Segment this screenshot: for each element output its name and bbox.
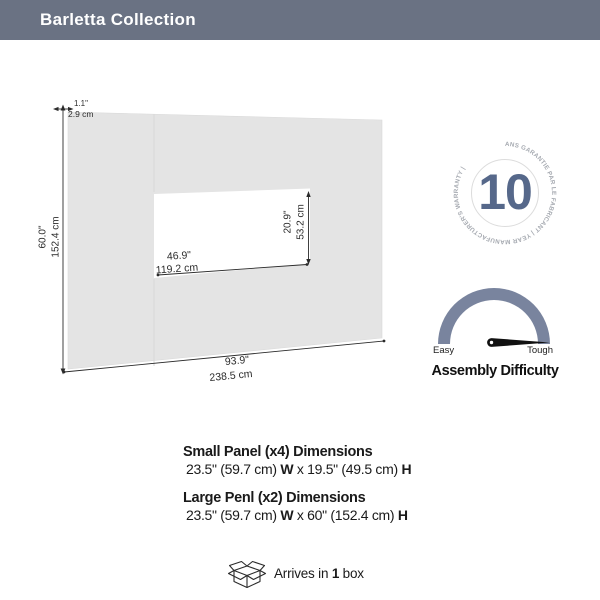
warranty-years: 10	[478, 164, 532, 220]
large-panel-w: W	[280, 507, 293, 523]
large-panel-dims-pre: 23.5" (59.7 cm)	[186, 507, 280, 523]
page: Barletta Collection 60.0" 152.4 cm 1.1" …	[0, 0, 600, 600]
large-panel-dims-mid: x 60" (152.4 cm)	[293, 507, 398, 523]
open-box-icon	[227, 553, 267, 593]
gauge-needle-pivot	[490, 341, 493, 344]
dimension-height: 60.0" 152.4 cm	[38, 105, 66, 375]
gauge-easy-label: Easy	[433, 345, 454, 356]
shipping-text-post: box	[339, 566, 364, 581]
cutout-height-cm-label: 53.2 cm	[296, 204, 307, 240]
small-panel-dims-pre: 23.5" (59.7 cm)	[186, 461, 280, 477]
width-cm-label: 238.5 cm	[209, 368, 253, 384]
large-panel-dimensions: 23.5" (59.7 cm) W x 60" (152.4 cm) H	[183, 507, 411, 523]
small-panel-w: W	[280, 461, 293, 477]
cutout-width-inches-label: 46.9"	[167, 249, 192, 263]
small-panel-dims-mid: x 19.5" (49.5 cm)	[293, 461, 401, 477]
panel-drawing	[68, 112, 382, 369]
height-inches-label: 60.0"	[38, 225, 49, 248]
shipping-info: Arrives in 1 box	[227, 553, 364, 593]
large-panel-h: H	[398, 507, 408, 523]
shipping-text: Arrives in 1 box	[274, 566, 364, 581]
width-inches-label: 93.9"	[224, 354, 249, 368]
small-panel-dimensions: 23.5" (59.7 cm) W x 19.5" (49.5 cm) H	[183, 461, 411, 477]
cutout-height-inches-label: 20.9"	[283, 210, 294, 233]
thickness-inches-label: 1.1"	[74, 99, 88, 108]
shipping-text-pre: Arrives in	[274, 566, 332, 581]
warranty-badge: ANS GARANTIE PAR LE FABRICANT | YEAR MAN…	[453, 141, 557, 245]
spec-large-panel: Large Penl (x2) Dimensions 23.5" (59.7 c…	[183, 490, 411, 523]
assembly-difficulty-gauge: Easy Tough Assembly Difficulty	[432, 288, 559, 379]
small-panel-h: H	[401, 461, 411, 477]
thickness-cm-label: 2.9 cm	[68, 109, 94, 119]
gauge-title: Assembly Difficulty	[432, 363, 559, 379]
gauge-arc	[438, 288, 550, 344]
small-panel-title: Small Panel (x4) Dimensions	[183, 444, 411, 461]
gauge-tough-label: Tough	[527, 345, 553, 356]
height-cm-label: 152.4 cm	[51, 216, 62, 257]
dimension-thickness: 1.1" 2.9 cm	[53, 99, 94, 119]
large-panel-title: Large Penl (x2) Dimensions	[183, 490, 411, 507]
panel-specs: Small Panel (x4) Dimensions 23.5" (59.7 …	[183, 444, 411, 523]
spec-small-panel: Small Panel (x4) Dimensions 23.5" (59.7 …	[183, 444, 411, 477]
